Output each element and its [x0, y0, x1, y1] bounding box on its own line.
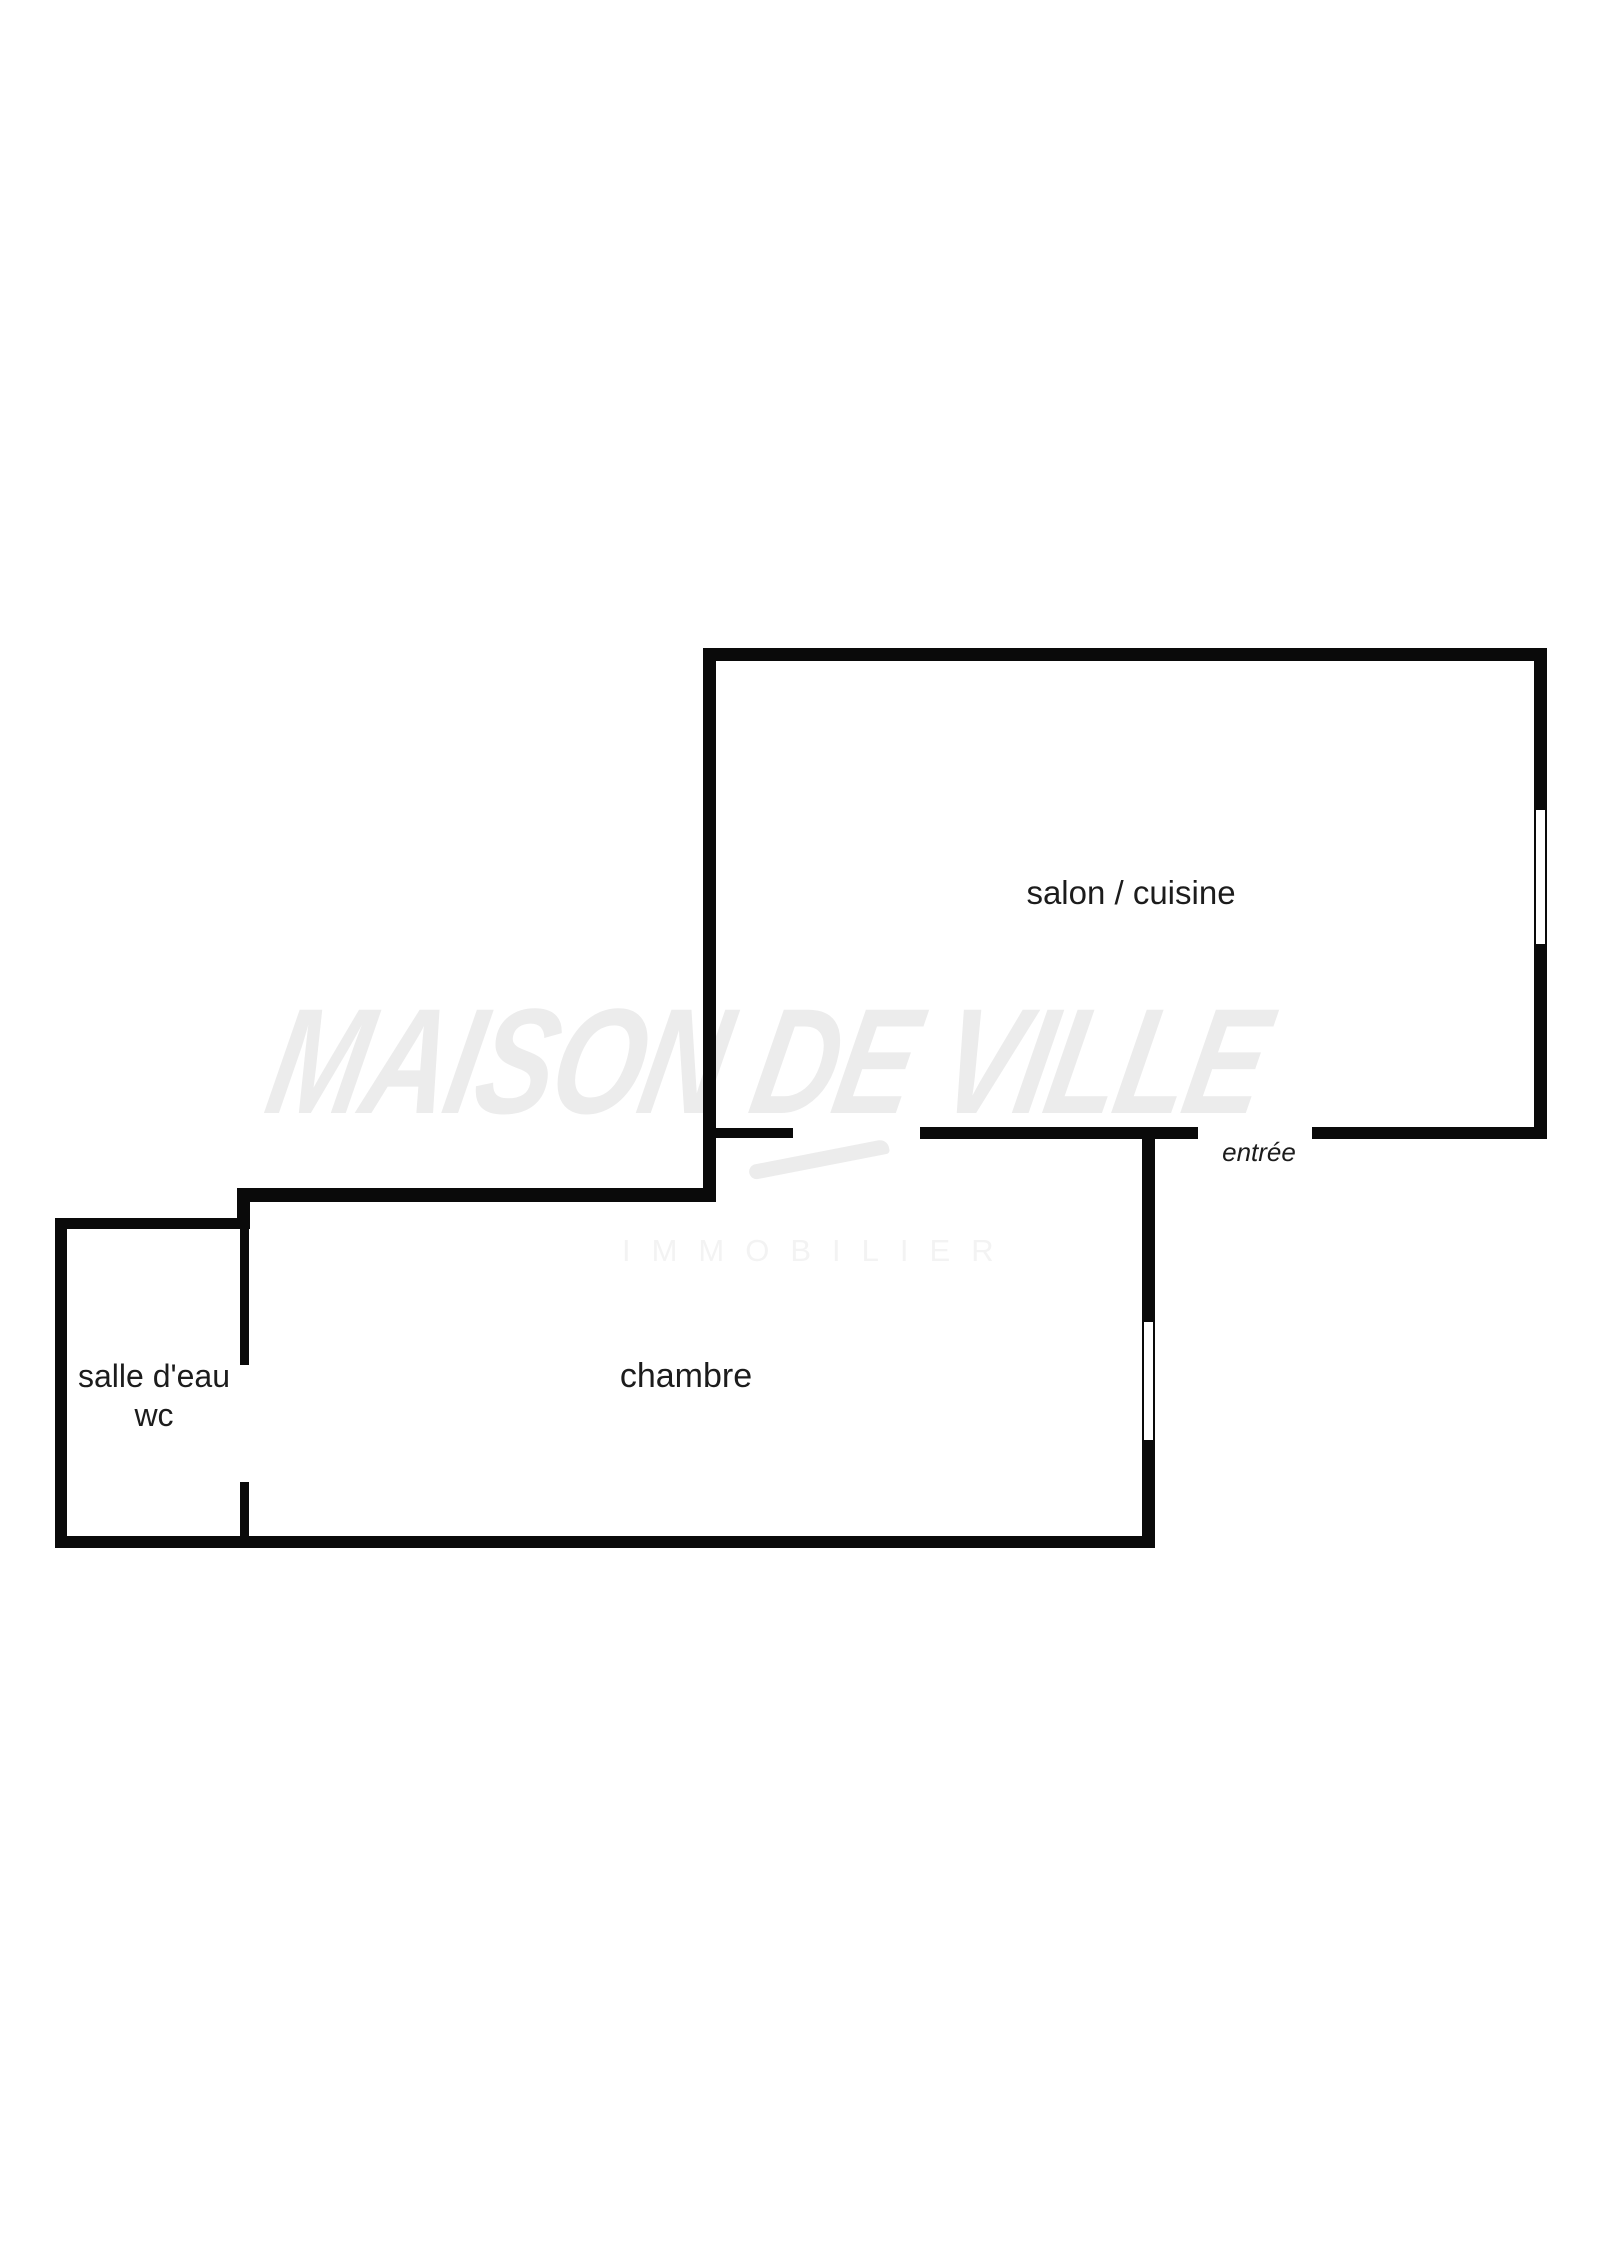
wall-salle-eau-top	[55, 1218, 250, 1229]
wall-bottom	[55, 1536, 1155, 1548]
wall-salon-left	[703, 648, 716, 1202]
wall-chambre-right-lower	[1142, 1442, 1155, 1548]
wall-salon-bottom-segment-1	[703, 1128, 793, 1138]
wall-salon-right-upper	[1534, 648, 1547, 808]
wall-chambre-right-upper	[1142, 1137, 1155, 1320]
wall-salon-top	[703, 648, 1547, 661]
wall-partition-upper	[240, 1202, 249, 1365]
label-salle-eau-wc: salle d'eau wc	[29, 1357, 279, 1435]
wall-salon-bottom-segment-2	[920, 1127, 1198, 1139]
salon-window	[1534, 808, 1547, 946]
label-salon-cuisine: salon / cuisine	[931, 874, 1331, 911]
wall-salon-right-lower	[1534, 946, 1547, 1138]
label-chambre: chambre	[486, 1357, 886, 1395]
watermark-title-text: MAISON DE VILLE	[257, 986, 1278, 1136]
wall-partition-lower	[240, 1482, 249, 1536]
floorplan-canvas: MAISON DE VILLE IMMOBILIER salon / cuisi…	[0, 0, 1600, 2261]
wall-chambre-top	[237, 1188, 716, 1202]
chambre-window	[1142, 1320, 1155, 1442]
label-salle-eau-line2: wc	[29, 1396, 279, 1435]
label-entree: entrée	[1159, 1138, 1359, 1166]
watermark-subtitle-text: IMMOBILIER	[622, 1234, 1015, 1268]
label-salle-eau-line1: salle d'eau	[29, 1357, 279, 1396]
